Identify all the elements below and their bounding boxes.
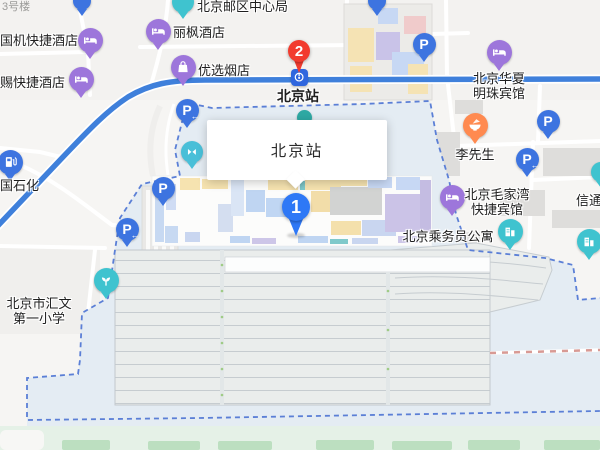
hotel-lifeng-label[interactable]: 丽枫酒店 bbox=[173, 25, 225, 40]
hotel-huaxia-label[interactable]: 北京华夏明珠宾馆 bbox=[473, 71, 525, 101]
hotel-ci-marker[interactable] bbox=[69, 67, 94, 92]
hotel-maojiawan-marker[interactable] bbox=[440, 185, 465, 210]
gate-ticket-marker[interactable] bbox=[181, 141, 203, 163]
sprout-icon bbox=[97, 271, 115, 289]
marker-tail bbox=[122, 240, 132, 247]
parking-east-arrow-marker[interactable]: P← bbox=[516, 148, 539, 171]
pin-head: 1 bbox=[282, 193, 310, 221]
metro-beijingzhan-label[interactable]: 北京站 bbox=[277, 89, 319, 104]
shop-youxuan-label[interactable]: 优选烟店 bbox=[198, 63, 250, 78]
label-line: 第一小学 bbox=[6, 311, 71, 326]
marker-tail bbox=[543, 132, 553, 139]
food-lixiansheng-marker[interactable] bbox=[463, 113, 488, 138]
apartment-chengwuyuan-marker[interactable] bbox=[498, 219, 523, 244]
food-lixiansheng-label[interactable]: 李先生 bbox=[455, 147, 494, 162]
marker-tail bbox=[187, 162, 197, 169]
label-line: 北京乘务员公寓 bbox=[402, 229, 493, 244]
label-line: 国机快捷酒店 bbox=[0, 33, 78, 48]
hotel-icon bbox=[149, 22, 167, 40]
parking-northeast-marker[interactable]: P bbox=[413, 33, 436, 56]
pin-number: 1 bbox=[291, 197, 301, 218]
pin-number: 2 bbox=[295, 43, 303, 60]
gas-sinopec-marker[interactable] bbox=[0, 150, 23, 175]
label-line: 快捷宾馆 bbox=[464, 202, 529, 217]
label-line: 北京邮区中心局 bbox=[197, 0, 288, 14]
infobox-title: 北京站 bbox=[271, 139, 324, 161]
rail-platforms bbox=[115, 243, 552, 405]
marker-tail bbox=[596, 181, 600, 188]
shop-youxuan-marker[interactable] bbox=[171, 55, 196, 80]
parking-plaza-arrow-marker[interactable]: P← bbox=[176, 99, 199, 122]
parking-icon: P bbox=[543, 114, 552, 128]
label-line: 北京毛家湾 bbox=[464, 187, 529, 202]
hotel-huaxia-marker[interactable] bbox=[487, 40, 512, 65]
map-root: 北京站 国机快捷酒店赐快捷酒店3号楼北京邮区中心局丽枫酒店优选烟店P北京华夏明珠… bbox=[0, 0, 600, 450]
gas-sinopec-label[interactable]: 国石化 bbox=[0, 178, 39, 193]
hotel-icon bbox=[81, 31, 99, 49]
apartment-chengwuyuan-label[interactable]: 北京乘务员公寓 bbox=[402, 229, 493, 244]
label-line: 国石化 bbox=[0, 178, 39, 193]
marker-tail bbox=[470, 137, 480, 144]
parking-west-marker[interactable]: P bbox=[152, 177, 175, 200]
marker-tail bbox=[182, 121, 192, 128]
label-line: 李先生 bbox=[455, 147, 494, 162]
hotel-maojiawan-label[interactable]: 北京毛家湾快捷宾馆 bbox=[464, 187, 529, 217]
parking-icon: P bbox=[158, 181, 167, 195]
marker-tail bbox=[153, 43, 163, 50]
label-3haolou-label[interactable]: 3号楼 bbox=[2, 0, 30, 15]
marker-tail bbox=[494, 64, 504, 71]
arrow-left-icon: ← bbox=[191, 112, 200, 121]
school-huiwen-label[interactable]: 北京市汇文第一小学 bbox=[6, 296, 71, 326]
marker-tail bbox=[372, 9, 382, 16]
marker-tail bbox=[178, 79, 188, 86]
hotel-icon bbox=[443, 188, 461, 206]
marker-tail bbox=[522, 170, 532, 177]
gas-icon bbox=[1, 153, 19, 171]
shop-icon bbox=[174, 58, 192, 76]
label-line: 北京华夏 bbox=[473, 71, 525, 86]
label-line: 赐快捷酒店 bbox=[0, 75, 65, 90]
gate-icon bbox=[184, 144, 200, 160]
marker-tail bbox=[77, 9, 87, 16]
building-east-marker[interactable] bbox=[577, 229, 600, 254]
hotel-guoji-marker[interactable] bbox=[78, 28, 103, 53]
pin-spike bbox=[289, 219, 303, 236]
arrow-left-icon: ← bbox=[531, 161, 540, 170]
parking-east-marker[interactable]: P bbox=[537, 110, 560, 133]
label-line: 北京市汇文 bbox=[6, 296, 71, 311]
hotel-icon bbox=[72, 70, 90, 88]
post-hub-label[interactable]: 北京邮区中心局 bbox=[197, 0, 288, 14]
marker-tail bbox=[419, 55, 429, 62]
marker-tail bbox=[447, 209, 457, 216]
school-huiwen-marker[interactable] bbox=[94, 268, 119, 293]
green-area bbox=[0, 426, 600, 450]
label-line: 信通 bbox=[576, 193, 600, 208]
poi-xintong-cut-label[interactable]: 信通 bbox=[576, 193, 600, 208]
hotel-guoji-label[interactable]: 国机快捷酒店 bbox=[0, 33, 78, 48]
marker-tail bbox=[101, 292, 111, 299]
building-icon bbox=[501, 222, 519, 240]
label-line: 优选烟店 bbox=[198, 63, 250, 78]
marker-tail bbox=[505, 243, 515, 250]
label-line: 明珠宾馆 bbox=[473, 86, 525, 101]
hotel-lifeng-marker[interactable] bbox=[146, 19, 171, 44]
marker-tail bbox=[76, 91, 86, 98]
label-line: 3号楼 bbox=[2, 0, 30, 15]
hotel-icon bbox=[490, 43, 508, 61]
label-line: 丽枫酒店 bbox=[173, 25, 225, 40]
food-icon bbox=[466, 116, 484, 134]
parking-southwest-arrow-marker[interactable]: P← bbox=[116, 218, 139, 241]
building-icon bbox=[580, 232, 598, 250]
marker-tail bbox=[584, 253, 594, 260]
station-infobox[interactable]: 北京站 bbox=[207, 120, 387, 180]
arrow-left-icon: ← bbox=[131, 231, 140, 240]
label-line: 北京站 bbox=[277, 89, 319, 104]
marker-tail bbox=[158, 199, 168, 206]
marker-tail bbox=[85, 52, 95, 59]
hotel-ci-label[interactable]: 赐快捷酒店 bbox=[0, 75, 65, 90]
marker-tail bbox=[178, 12, 188, 19]
pin-head: 2 bbox=[288, 40, 310, 62]
parking-icon: P bbox=[419, 37, 428, 51]
